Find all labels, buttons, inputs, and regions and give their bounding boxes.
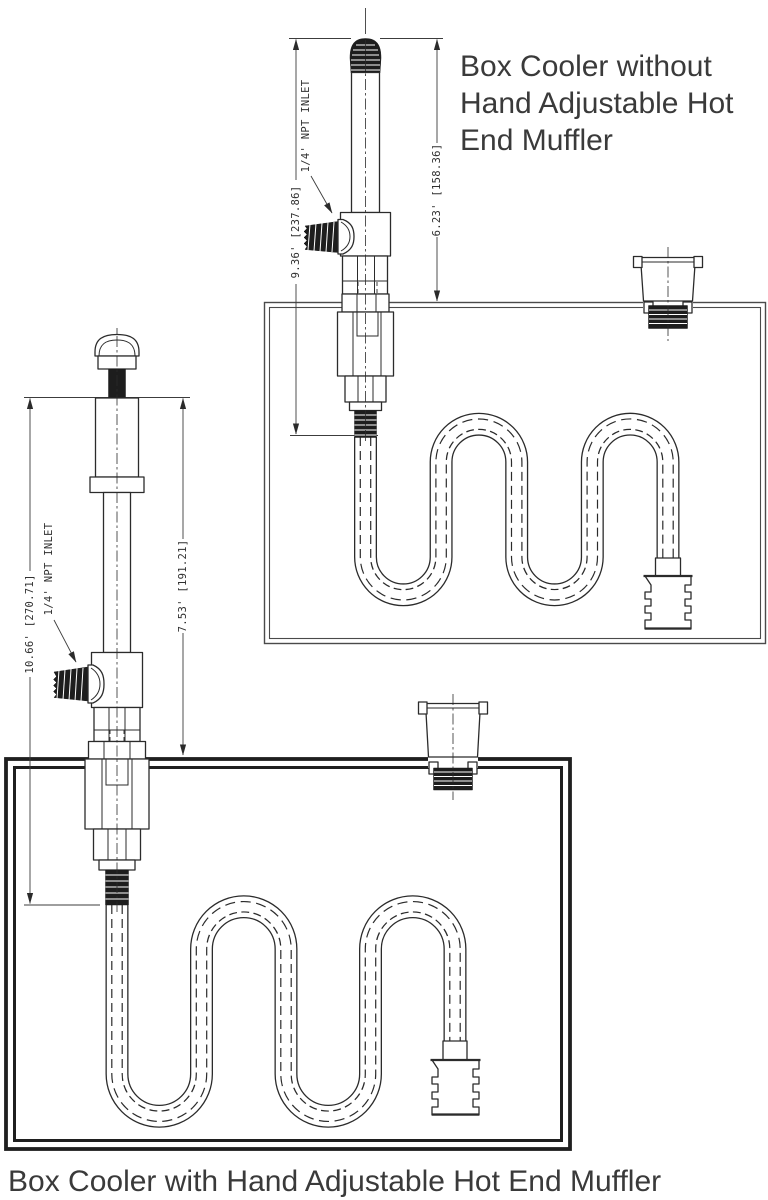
dim-overall-bottom: 10.66' [270.71] [24,574,36,673]
bottom-ribbed-fitting [431,1041,481,1115]
npt-leader-top [311,176,332,213]
drawing-canvas: 9.36' [237.86] 6.23' [158.36] 1/4' NPT I… [0,0,768,1200]
bottom-caption: Box Cooler with Hand Adjustable Hot End … [8,1165,661,1198]
bottom-diagram: 10.66' [270.71] 7.53' [191.21] 1/4' NPT … [6,328,661,1198]
dim-overall-top: 9.36' [237.86] [290,186,302,279]
npt-leader-bottom [54,620,76,662]
title-line-2: Hand Adjustable Hot [460,87,734,120]
bottom-muffler-assembly [54,328,150,912]
npt-inlet-label-top: 1/4' NPT INLET [300,79,312,172]
technical-drawing-page: 9.36' [237.86] 6.23' [158.36] 1/4' NPT I… [0,0,768,1200]
dim-above-box-top: 6.23' [158.36] [431,144,443,237]
bottom-coil [117,905,455,1116]
top-ribbed-fitting [644,558,693,629]
top-cap-fitting [634,247,703,341]
top-title: Box Cooler without Hand Adjustable Hot E… [460,50,734,157]
title-line-3: End Muffler [460,124,613,157]
bottom-cap-fitting [419,694,488,800]
top-inlet-assembly [304,8,394,444]
dim-above-box-bottom: 7.53' [191.21] [177,540,189,633]
top-coil [366,424,669,595]
top-diagram: 9.36' [237.86] 6.23' [158.36] 1/4' NPT I… [265,8,766,644]
title-line-1: Box Cooler without [460,50,712,83]
npt-inlet-label-bottom: 1/4' NPT INLET [43,522,55,615]
